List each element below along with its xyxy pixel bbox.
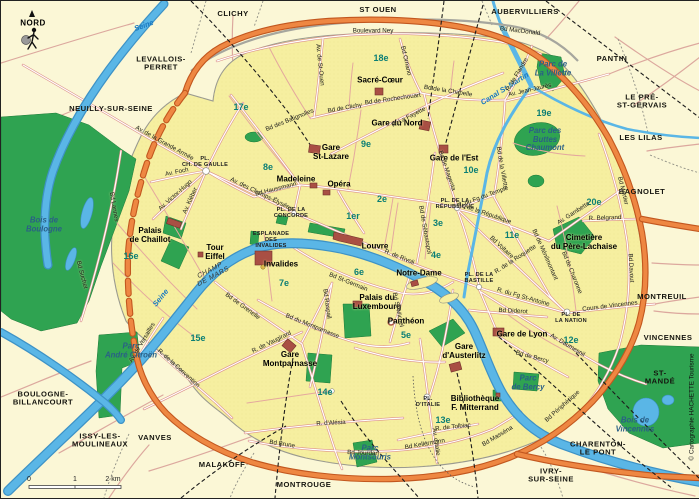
label-ivry-sur-seine: IVRY- SUR-SEINE [528, 468, 574, 485]
label-bd-kellermann: Bd Kellermann [404, 438, 445, 452]
label-tour-eiffel: Tour Eiffel [205, 244, 225, 262]
label-neuilly-sur-seine: NEUILLY-SUR-SEINE [69, 105, 153, 113]
label-av-des-champs-élysées: Av. des Champs-Élysées [229, 177, 294, 213]
label-gare-montparnasse: Gare Montparnasse [263, 351, 317, 369]
label-panthéon: Panthéon [388, 318, 424, 327]
label-vanves: VANVES [138, 434, 172, 442]
label-2e: 2e [377, 195, 387, 205]
label-bd-périphérique: Bd Périphérique [544, 390, 582, 425]
label-montrouge: MONTROUGE [277, 481, 332, 489]
label-bd-de-la-villette: Bd de la Villette [494, 146, 508, 189]
label-bd-lannes: Bd Lannes [107, 192, 119, 222]
label-parc-de-bercy: Parc de Bercy [512, 374, 545, 391]
label-bd-davout: Bd Davout [626, 253, 634, 282]
label-canal-st-martin: Canal St-Martin [479, 71, 530, 107]
label-av-de-versailles: Av. de Versailles [128, 322, 157, 364]
label-18e: 18e [373, 54, 388, 64]
label-bd-de-ménilmontant: Bd de Ménilmontant [530, 228, 559, 281]
label-20e: 20e [586, 198, 601, 208]
label-4e: 4e [431, 251, 441, 261]
label-sacré-cœur: Sacré-Cœur [357, 77, 403, 86]
label-r-du-fg-st-antoine: R. du Fg St-Antoine [496, 287, 550, 309]
label-av-foch: Av. Foch [165, 167, 190, 179]
label-pl-d-italie: PL. D'ITALIE [416, 396, 440, 408]
label-malakoff: MALAKOFF [199, 461, 246, 469]
label-opéra: Opéra [327, 181, 350, 190]
label-r-de-vaugirard: R. de Vaugirard [251, 331, 293, 356]
label-cimetière-du-père-lachaise: Cimetière du Père-Lachaise [551, 234, 617, 252]
label-bd-de-rochechouart: Bd de Rochechouart [365, 93, 422, 108]
label-gare-du-nord: Gare du Nord [371, 120, 422, 129]
label-palais-du-luxembourg: Palais du Luxembourg [353, 294, 401, 312]
label-bd-brune: Bd Brune [269, 440, 296, 451]
label-pantin: PANTIN [597, 55, 628, 63]
copyright-notice: © Cartographie HACHETTE Tourisme [688, 353, 695, 460]
label-pl-de-la-nation: PL. DE LA NATION [555, 312, 587, 324]
label-bd-st-germain: Bd St-Germain [328, 272, 368, 294]
label-cours-de-vincennes: Cours de Vincennes [582, 300, 638, 314]
label-charenton-le-pont: CHARENTON- LE PONT [570, 441, 626, 458]
scale-tick-1: 1 [73, 476, 77, 484]
label-bd-de-la-chapelle: Bd de la Chapelle [423, 85, 472, 99]
label-louvre: Louvre [362, 243, 389, 252]
label-bd-de-magenta: Bd de Magenta [436, 150, 456, 192]
label-av-victor-hugo: Av. Victor-Hugo [158, 179, 194, 213]
label-champ-de-mars: CHAMP DE MARS [193, 259, 231, 289]
label-av-de-la-république: Av. de la République [456, 202, 512, 227]
label-r-belgrand: R. Belgrand [589, 215, 622, 223]
label-10e: 10e [463, 166, 478, 176]
label-r-du-fg-du-temple: R. du Fg du Temple [457, 186, 510, 211]
label-madeleine: Madeleine [277, 176, 316, 185]
label-8e: 8e [263, 163, 273, 173]
label-bois-de-boulogne: Bois de Boulogne [26, 216, 62, 233]
label-bd-de-clichy: Bd de Clichy [327, 103, 362, 116]
label-bois-de-vincennes: Bois de Vincennes [616, 416, 655, 433]
label-levallois-perret: LEVALLOIS- PERRET [136, 56, 186, 73]
label-bagnolet: BAGNOLET [619, 188, 666, 196]
label-3e: 3e [433, 219, 443, 229]
label-av-de-la-grande-armée: Av. de la Grande Armée [134, 125, 195, 163]
label-bd-de-grenelle: Bd de Grenelle [223, 292, 260, 322]
label-17e: 17e [233, 103, 248, 113]
label-r-de-rivoli: R. de Rivoli [383, 249, 415, 267]
label-5e: 5e [401, 331, 411, 341]
label-bd-du-montparnasse: Bd du Montparnasse [284, 313, 340, 341]
label-parc-de-la-villette: Parc de La Villette [535, 60, 572, 77]
label-gare-de-lyon: Gare de Lyon [497, 331, 548, 340]
label-bd-de-charonne: Bd de Charonne [559, 251, 582, 295]
label-gare-st-lazare: Gare St-Lazare [313, 144, 349, 162]
label-montreuil: MONTREUIL [637, 293, 687, 301]
label-gare-d-austerlitz: Gare d'Austerlitz [442, 343, 485, 361]
label-r-d-alésia: R. d'Alésia [316, 420, 346, 428]
label-av-gambetta: Av. Gambetta [557, 201, 592, 227]
label-av-daumesnil: Av. Daumesnil [548, 333, 585, 359]
label-13e: 13e [435, 416, 450, 426]
label-boulevard-ney: Boulevard Ney [353, 29, 394, 36]
label-6e: 6e [354, 268, 364, 278]
label-bd-mortier: Bd Mortier [615, 176, 629, 205]
label-bd-raspail: Bd Raspail [321, 289, 332, 320]
label-clichy: CLICHY [217, 10, 248, 18]
label-12e: 12e [563, 336, 578, 346]
label-r-de-la-roquette: R. de la Roquette [494, 244, 538, 276]
paris-tourist-map: NORD 0 1 2 km © Cartographie HACHETTE To… [0, 0, 699, 499]
label-bd-de-bercy: Bd de Bercy [515, 350, 549, 365]
label-bd-ornano: Bd Ornano [398, 46, 411, 77]
label-bd-st-michel: Bd St-Michel [390, 292, 404, 328]
label-issy-les-moulineaux: ISSY-LES- MOULINEAUX [72, 433, 128, 450]
scale-tick-2: 2 km [105, 476, 120, 484]
label-st-ouen: ST OUEN [359, 6, 396, 14]
label-r-de-tolbiac: R. de Tolbiac [435, 423, 471, 434]
label-14e: 14e [317, 388, 332, 398]
label-pl-ch-de-gaulle: PL. CH. DE GAULLE [182, 156, 228, 168]
label-seine: Seine [151, 288, 170, 309]
label-pl-de-la-concorde: PL. DE LA CONCORDE [274, 207, 308, 219]
label-9e: 9e [361, 140, 371, 150]
label-av-de-st-ouen: Av. de St-Ouen [313, 44, 324, 86]
label-les-lilas: LES LILAS [619, 134, 662, 142]
label-bd-des-batignolles: Bd des Batignolles [265, 108, 315, 134]
compass-label: NORD [20, 20, 46, 29]
label-pl-de-la-bastille: PL. DE LA BASTILLE [465, 272, 494, 284]
label-vincennes: VINCENNES [644, 334, 693, 342]
label-palais-de-chaillot: Palais de Chaillot [130, 227, 171, 245]
label-esplanade-des-invalides: ESPLANADE DES INVALIDES [253, 231, 289, 249]
label-r-de-la-convention: R. de la Convention [156, 348, 201, 389]
label-1er: 1er [346, 212, 360, 222]
label-bd-diderot: Bd Diderot [498, 308, 528, 316]
label-15e: 15e [190, 334, 205, 344]
label-aubervilliers: AUBERVILLIERS [491, 8, 559, 16]
label-bd-voltaire: Bd Voltaire [488, 235, 515, 260]
label-boulogne-billancourt: BOULOGNE- BILLANCOURT [13, 391, 73, 408]
map-labels-layer: NORD 0 1 2 km © Cartographie HACHETTE To… [1, 1, 699, 498]
label-invalides: Invalides [264, 261, 298, 270]
label-r-la-fayette: R. La Fayette [391, 107, 427, 130]
label-av-kléber: Av. Kléber [182, 187, 200, 215]
label-7e: 7e [279, 279, 289, 289]
label-le-pré-st-gervais: LE PRÉ- ST-GERVAIS [617, 94, 667, 111]
label-gare-de-l-est: Gare de l'Est [430, 155, 479, 164]
label-bd-macdonald: Bd MacDonald [499, 26, 540, 38]
label-bd-haussmann: Bd Haussmann [255, 182, 298, 199]
label-bd-masséna: Bd Masséna [481, 425, 514, 449]
label-11e: 11e [505, 231, 520, 241]
label-bd-suchet: Bd Suchet [74, 260, 88, 289]
label-parc-andré-citro-n: Parc André Citroën [105, 342, 157, 359]
label-st-mandé: ST-MANDÉ [640, 370, 680, 387]
label-av-jean-jaurès: Av. Jean-Jaurès [508, 83, 553, 100]
label-pl-de-la-république: PL. DE LA RÉPUBLIQUE [436, 198, 475, 210]
label-bd-de-sébastopol: Bd de Sébastopol [416, 205, 431, 254]
label-seine: Seine [133, 19, 155, 34]
scale-tick-0: 0 [27, 476, 31, 484]
label-r-de-flandre: R. de Flandre [505, 57, 530, 93]
label-bd-jourdan: Bd Jourdan [347, 450, 379, 458]
label-bibliothèque-f-mitterrand: Bibliothèque F. Mitterrand [451, 395, 499, 413]
label-19e: 19e [536, 109, 551, 119]
label-notre-dame: Notre-Dame [396, 270, 441, 279]
label-16e: 16e [123, 252, 138, 262]
label-av-d-italie: Av. d'Italie [430, 428, 441, 456]
label-parc-des-buttes-chaumont: Parc des Buttes Chaumont [526, 127, 565, 153]
label-parc-montsouris: Parc Montsouris [349, 444, 391, 461]
